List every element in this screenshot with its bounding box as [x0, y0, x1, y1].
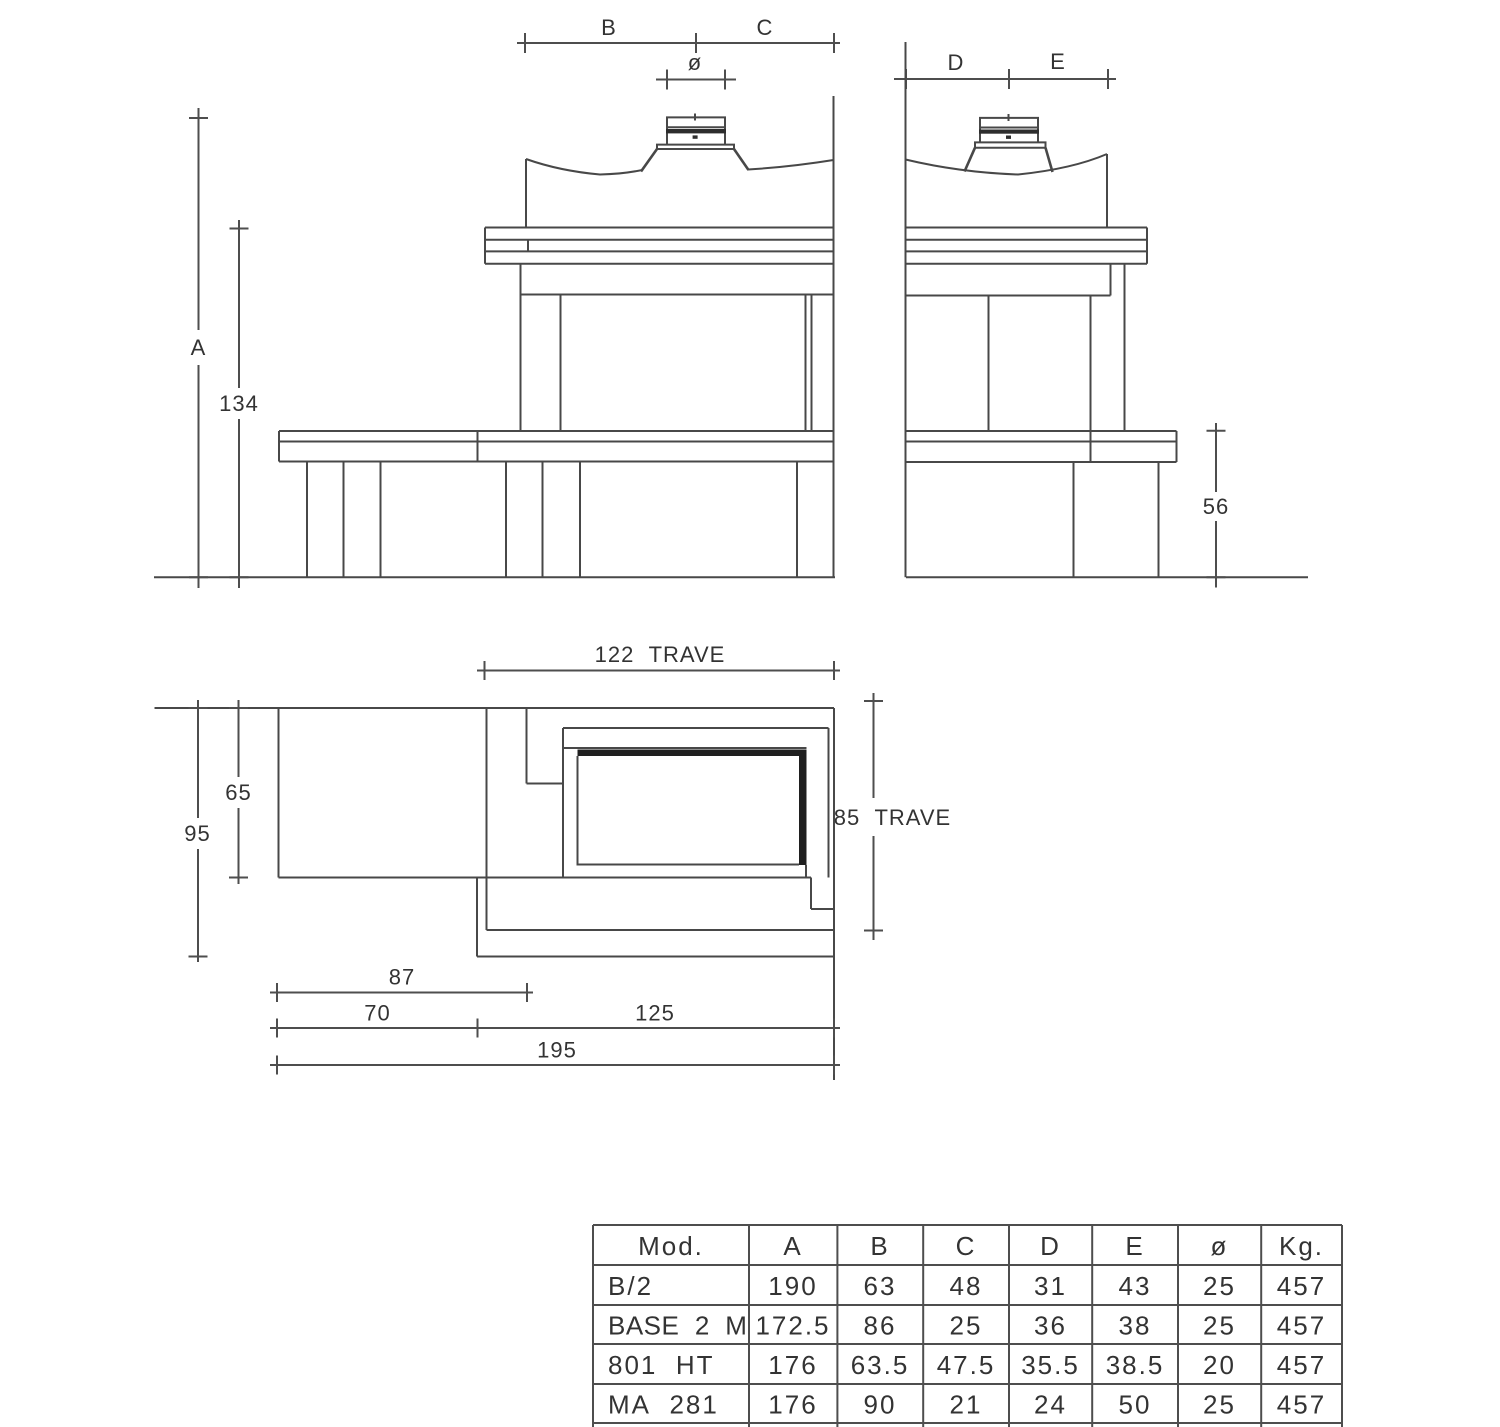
svg-text:457: 457 — [1277, 1311, 1326, 1341]
svg-text:36: 36 — [1034, 1311, 1067, 1341]
svg-text:38: 38 — [1119, 1311, 1152, 1341]
svg-text:48: 48 — [950, 1271, 983, 1301]
svg-text:ø: ø — [1211, 1231, 1229, 1261]
svg-text:25: 25 — [1203, 1271, 1236, 1301]
svg-text:43: 43 — [1119, 1271, 1152, 1301]
svg-text:A: A — [191, 335, 207, 360]
svg-text:47.5: 47.5 — [937, 1350, 996, 1380]
svg-text:20: 20 — [1203, 1350, 1236, 1380]
svg-text:B: B — [870, 1231, 889, 1261]
svg-text:B: B — [601, 15, 617, 40]
svg-text:B/2: B/2 — [608, 1271, 653, 1301]
svg-text:C: C — [956, 1231, 977, 1261]
svg-text:A: A — [783, 1231, 802, 1261]
svg-text:50: 50 — [1119, 1390, 1152, 1420]
svg-text:87: 87 — [389, 965, 415, 990]
svg-text:56: 56 — [1203, 494, 1229, 519]
svg-text:125: 125 — [635, 1001, 675, 1026]
svg-text:25: 25 — [1203, 1311, 1236, 1341]
svg-text:457: 457 — [1277, 1271, 1326, 1301]
svg-text:190: 190 — [768, 1271, 817, 1301]
svg-text:38.5: 38.5 — [1106, 1350, 1165, 1380]
svg-text:E: E — [1125, 1231, 1144, 1261]
svg-text:24: 24 — [1034, 1390, 1067, 1420]
svg-text:C: C — [757, 15, 774, 40]
svg-text:25: 25 — [1203, 1390, 1236, 1420]
svg-text:85 TRAVE: 85 TRAVE — [834, 805, 951, 830]
svg-text:65: 65 — [225, 780, 251, 805]
svg-text:86: 86 — [864, 1311, 897, 1341]
svg-text:176: 176 — [768, 1350, 817, 1380]
svg-text:21: 21 — [950, 1390, 983, 1420]
svg-text:MA 281: MA 281 — [608, 1390, 719, 1420]
svg-text:E: E — [1050, 49, 1066, 74]
svg-text:134: 134 — [219, 391, 259, 416]
svg-text:ø: ø — [688, 50, 702, 75]
svg-text:Kg.: Kg. — [1279, 1231, 1324, 1261]
svg-text:70: 70 — [364, 1001, 390, 1026]
svg-text:Mod.: Mod. — [638, 1231, 704, 1261]
svg-text:63: 63 — [864, 1271, 897, 1301]
svg-text:BASE 2 M: BASE 2 M — [608, 1311, 747, 1341]
svg-text:D: D — [948, 50, 965, 75]
svg-text:63.5: 63.5 — [851, 1350, 910, 1380]
svg-text:90: 90 — [864, 1390, 897, 1420]
svg-text:457: 457 — [1277, 1390, 1326, 1420]
svg-text:195: 195 — [537, 1038, 577, 1063]
svg-text:25: 25 — [950, 1311, 983, 1341]
svg-text:95: 95 — [184, 821, 210, 846]
svg-text:D: D — [1040, 1231, 1061, 1261]
svg-text:172.5: 172.5 — [755, 1311, 830, 1341]
svg-text:122 TRAVE: 122 TRAVE — [595, 642, 726, 667]
svg-text:801 HT: 801 HT — [608, 1350, 715, 1380]
svg-text:176: 176 — [768, 1390, 817, 1420]
svg-text:35.5: 35.5 — [1021, 1350, 1080, 1380]
svg-text:31: 31 — [1034, 1271, 1067, 1301]
svg-text:457: 457 — [1277, 1350, 1326, 1380]
